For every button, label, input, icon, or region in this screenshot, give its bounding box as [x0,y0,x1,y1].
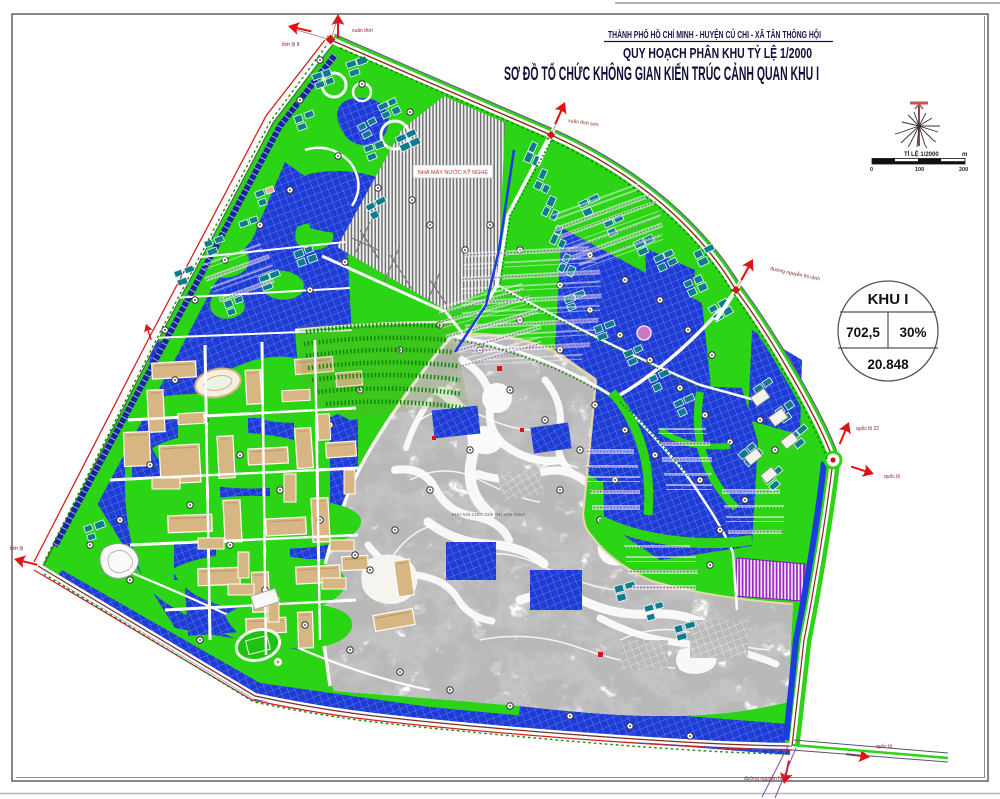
svg-text:tỉnh lộ: tỉnh lộ [10,545,24,552]
svg-text:SƠ ĐỒ TỔ CHỨC KHÔNG GIAN KIẾN: SƠ ĐỒ TỔ CHỨC KHÔNG GIAN KIẾN TRÚC CẢNH … [504,63,819,85]
svg-text:quốc lộ: quốc lộ [884,474,900,480]
svg-text:200: 200 [959,167,968,173]
svg-text:quốc lộ: quốc lộ [876,744,892,750]
svg-text:702,5: 702,5 [846,325,880,340]
svg-text:đường nguyễn hữu: đường nguyễn hữu [744,775,787,782]
svg-text:20.848: 20.848 [867,357,909,372]
svg-text:tỉnh lộ 8: tỉnh lộ 8 [282,41,300,48]
svg-text:NHÀ MÁY NƯỚC KỸ NGHỆ: NHÀ MÁY NƯỚC KỸ NGHỆ [418,168,488,176]
svg-text:QUY HOẠCH PHÂN KHU TỶ LỆ 1/200: QUY HOẠCH PHÂN KHU TỶ LỆ 1/2000 [623,44,812,62]
svg-text:KHU VUI CHƠI GIẢI TRÍ SÂN GOLF: KHU VUI CHƠI GIẢI TRÍ SÂN GOLF [452,511,526,517]
svg-text:xuân thới: xuân thới [352,28,373,34]
svg-text:100: 100 [915,167,924,173]
svg-text:m: m [962,152,967,158]
svg-text:0: 0 [870,167,873,173]
svg-text:KHU I: KHU I [868,291,909,308]
svg-text:THÀNH PHỐ HỒ CHÍ MINH - HUYỆN: THÀNH PHỐ HỒ CHÍ MINH - HUYỆN CỦ CHI - X… [608,27,821,41]
svg-text:quốc lộ 22: quốc lộ 22 [856,426,879,432]
svg-text:TỈ LỆ 1/2000: TỈ LỆ 1/2000 [904,150,939,158]
svg-text:30%: 30% [899,325,926,340]
